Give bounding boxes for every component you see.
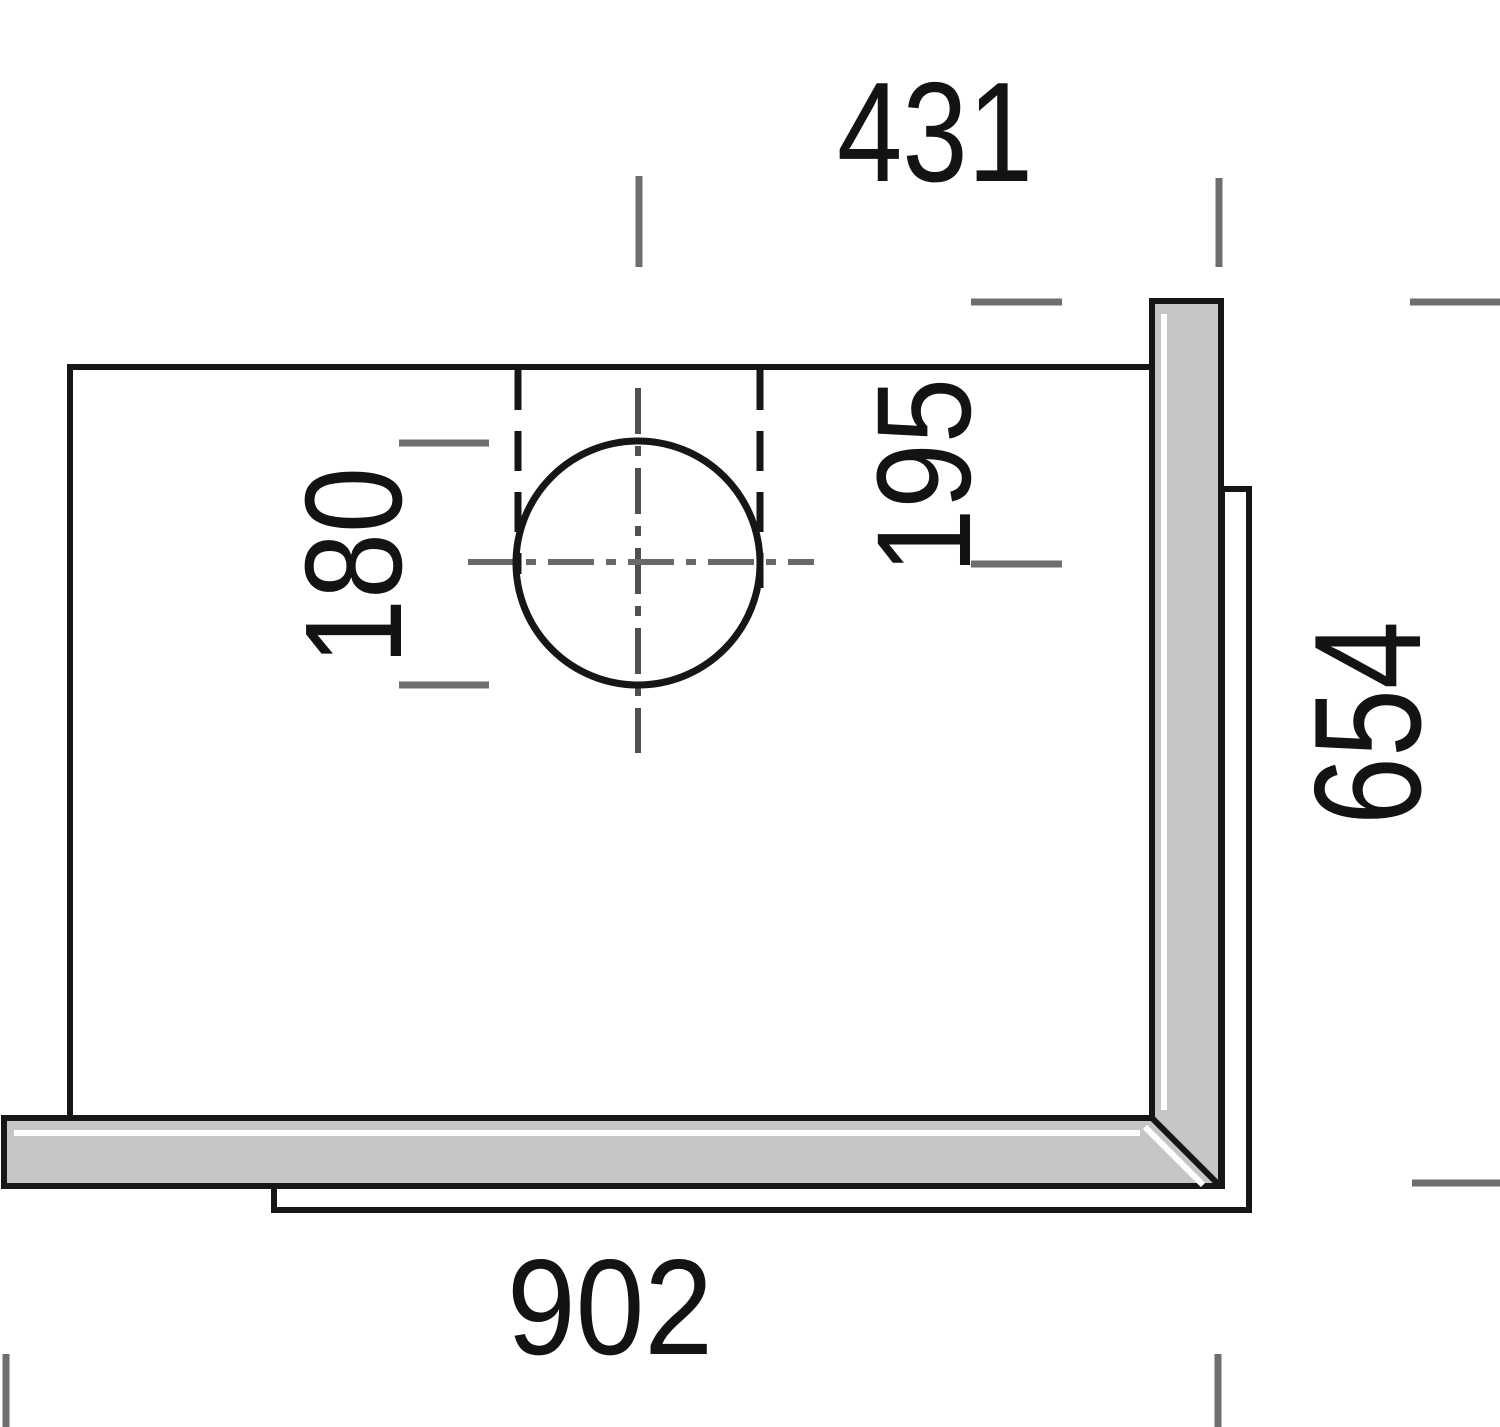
dimension-label-195: 195: [850, 378, 999, 574]
plan-view-technical-drawing: 431 195 180 654 902: [0, 0, 1500, 1427]
dimension-label-431: 431: [837, 53, 1033, 212]
drawing-canvas: 431 195 180 654 902: [0, 0, 1500, 1427]
dimension-label-180: 180: [277, 467, 431, 665]
dimension-label-902: 902: [507, 1231, 713, 1383]
dimension-label-654: 654: [1283, 621, 1453, 825]
